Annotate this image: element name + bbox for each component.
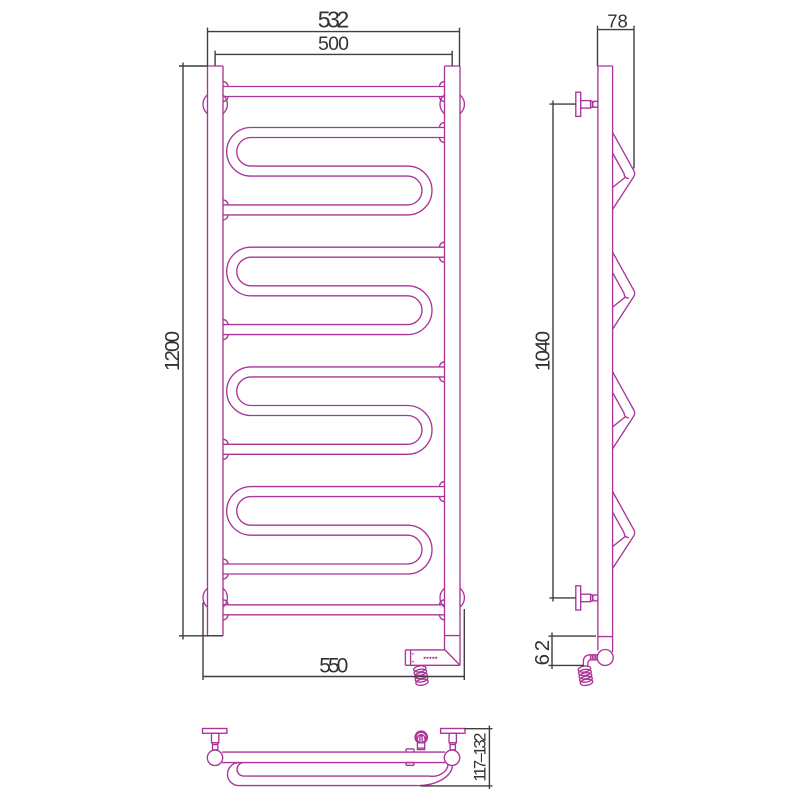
svg-text:500: 500 xyxy=(318,33,349,55)
svg-text:78: 78 xyxy=(607,11,628,32)
svg-text:532: 532 xyxy=(318,7,350,33)
svg-text:117–132: 117–132 xyxy=(472,733,490,782)
svg-text:1200: 1200 xyxy=(161,331,184,371)
svg-text:1040: 1040 xyxy=(532,331,555,371)
svg-text:550: 550 xyxy=(319,654,348,677)
